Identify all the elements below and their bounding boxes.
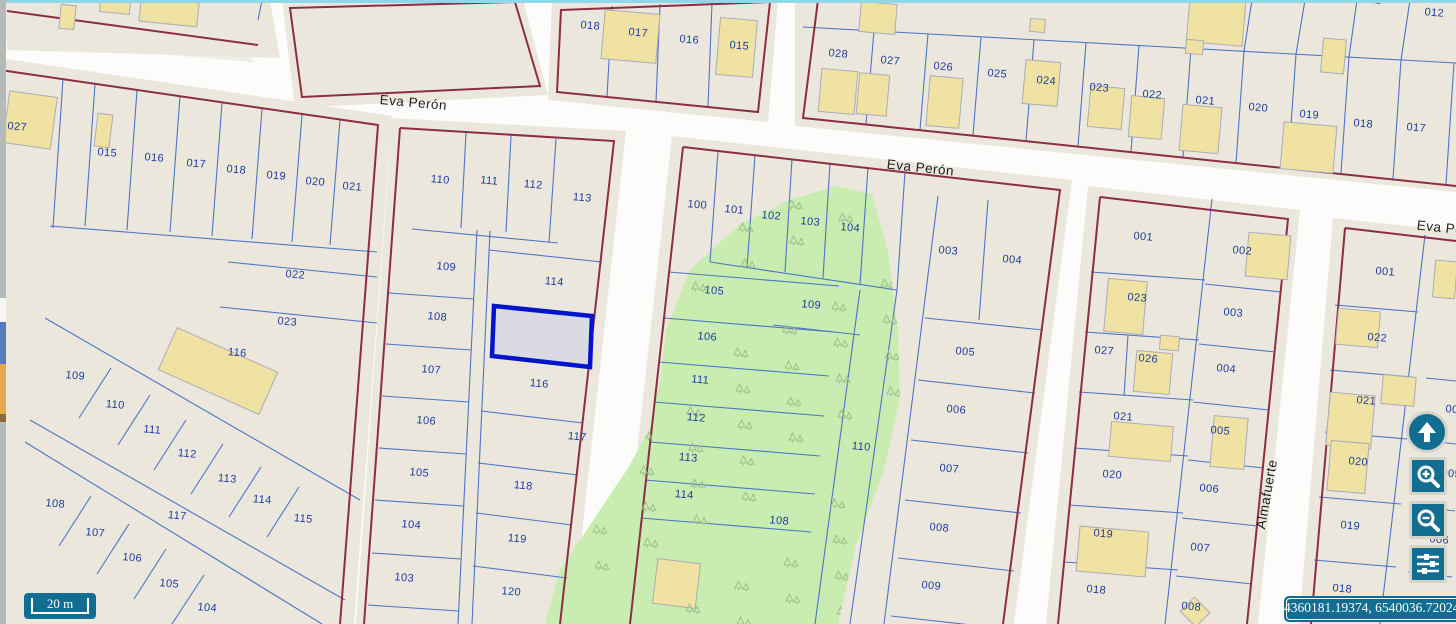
building-footprint — [1109, 421, 1174, 461]
building-footprint — [1432, 260, 1456, 299]
sliders-icon — [1415, 551, 1441, 577]
building-footprint — [652, 559, 700, 609]
parcel-label: 019 — [1093, 527, 1114, 541]
parcel-label: 105 — [409, 466, 430, 480]
parcel-label: 023 — [277, 315, 298, 329]
parcel-label: 119 — [507, 532, 527, 546]
parcel-label: 101 — [724, 203, 745, 217]
parcel-label: 018 — [1086, 583, 1107, 597]
parcel-label: 103 — [394, 571, 415, 585]
scale-bar-label: 20 m — [24, 596, 96, 612]
parcel-label: 020 — [1348, 455, 1369, 469]
parcel-label: 018 — [1353, 117, 1374, 131]
parcel-label: 005 — [955, 345, 976, 359]
parcel-label: 016 — [144, 151, 165, 165]
parcel-label: 001 — [1133, 230, 1154, 244]
parcel-label: 003 — [1223, 306, 1244, 320]
building-footprint — [1280, 122, 1337, 173]
parcel-label: 106 — [122, 551, 143, 565]
parcel-label: 017 — [628, 26, 649, 40]
parcel-label: 007 — [939, 462, 960, 476]
parcel-label: 019 — [266, 169, 287, 183]
parcel-label: 016 — [679, 33, 700, 47]
building-footprint — [1185, 39, 1203, 54]
parcel-label: 108 — [45, 497, 66, 511]
parcel-label: 008 — [929, 521, 950, 535]
zoom-out-button[interactable] — [1409, 501, 1447, 539]
parcel-label: 017 — [186, 157, 207, 171]
parcel-label: 118 — [513, 479, 533, 493]
parcel-label: 028 — [828, 47, 849, 61]
parcel-label: 110 — [851, 440, 871, 454]
parcel-label: 007 — [1190, 541, 1211, 555]
parcel-label: 107 — [421, 363, 442, 377]
parcel-label: 107 — [85, 526, 106, 540]
panel-fragment — [0, 364, 6, 414]
parcel-label: 018 — [580, 19, 601, 33]
parcel-label: 113 — [678, 451, 698, 465]
building-footprint — [1321, 38, 1347, 74]
parcel-label: 114 — [544, 275, 564, 289]
parcel-label: 023 — [1127, 291, 1148, 305]
parcel-label: 018 — [226, 163, 247, 177]
parcel-label: 021 — [1113, 410, 1134, 424]
parcel-label: 018 — [1332, 582, 1353, 596]
parcel-label: 113 — [572, 191, 592, 205]
parcel-label: 023 — [1089, 81, 1110, 95]
parcel-label: 025 — [987, 67, 1008, 81]
layer-settings-button[interactable] — [1409, 545, 1447, 583]
coordinates-display: 4360181.19374, 6540036.72024 — [1284, 596, 1456, 622]
parcel-label: 116 — [227, 346, 247, 360]
building-footprint — [818, 69, 858, 115]
zoom-in-button[interactable] — [1409, 457, 1447, 495]
parcel-label: 005 — [1210, 424, 1231, 438]
parcel-label: 019 — [1299, 108, 1320, 122]
parcel-label: 026 — [1138, 352, 1159, 366]
parcel-label: 002 — [1232, 244, 1253, 258]
parcel-label: 115 — [293, 512, 313, 526]
parcel-label: 102 — [761, 209, 782, 223]
parcel-label: 109 — [436, 260, 457, 274]
parcel-label: 104 — [840, 221, 861, 235]
coordinates-value: 4360181.19374, 6540036.72024 — [1284, 600, 1456, 616]
parcel-label: 117 — [567, 430, 587, 444]
building-footprint — [1104, 278, 1147, 334]
parcel-label: 020 — [305, 175, 326, 189]
panel-fragment — [0, 298, 6, 322]
parcel-label: 006 — [1199, 482, 1220, 496]
selected-parcel[interactable] — [492, 306, 592, 367]
parcel-label: 113 — [217, 472, 237, 486]
parcel-label: 027 — [7, 120, 28, 134]
parcel-label: 021 — [342, 180, 363, 194]
building-footprint — [1381, 375, 1416, 407]
parcel-label: 004 — [1002, 253, 1023, 267]
parcel-label: 022 — [285, 268, 306, 282]
parcel-label: 022 — [1142, 88, 1163, 102]
parcel-label: 117 — [167, 509, 187, 523]
building-footprint — [1029, 18, 1045, 32]
parcel-label: 106 — [416, 414, 437, 428]
panel-fragment — [0, 322, 6, 364]
pan-up-button[interactable] — [1406, 411, 1448, 453]
parcel-label: 019 — [1340, 519, 1361, 533]
parcel-label: 111 — [691, 373, 710, 387]
gis-map-viewer: Eva PerónEva PerónEva PerónAlmafuerte018… — [0, 0, 1456, 624]
map-canvas[interactable]: Eva PerónEva PerónEva PerónAlmafuerte018… — [0, 0, 1456, 624]
panel-fragment — [0, 414, 6, 422]
parcel-label: 110 — [105, 398, 125, 412]
parcel-label: 108 — [769, 514, 790, 528]
parcel-label: 008 — [1181, 600, 1202, 614]
parcel-label: 020 — [1102, 468, 1123, 482]
parcel-label: 009 — [921, 579, 942, 593]
building-footprint — [1159, 335, 1179, 351]
parcel-label: 110 — [430, 173, 450, 187]
parcel-label: 015 — [729, 39, 750, 53]
parcel-label: 017 — [1406, 121, 1427, 135]
parcel-label: 103 — [800, 215, 821, 229]
parcel-label: 111 — [480, 174, 499, 188]
parcel-label: 004 — [1216, 362, 1237, 376]
parcel-label: 022 — [1367, 331, 1388, 345]
building-footprint — [1186, 0, 1246, 46]
parcel-label: 027 — [880, 54, 901, 68]
parcel-label: 109 — [65, 369, 86, 383]
parcel-label: 105 — [159, 577, 180, 591]
parcel-label: 109 — [801, 298, 822, 312]
parcel-label: 021 — [1195, 94, 1216, 108]
parcel-label: 001 — [1375, 265, 1396, 279]
scale-bar: 20 m — [24, 593, 96, 619]
building-footprint — [1128, 96, 1164, 140]
parcel-label: 104 — [197, 601, 218, 615]
parcel-label: 116 — [529, 377, 549, 391]
building-footprint — [856, 73, 889, 116]
building-footprint — [1245, 232, 1291, 279]
building-footprint — [1179, 104, 1222, 153]
building-footprint — [926, 76, 963, 129]
parcel-label: 024 — [1036, 74, 1057, 88]
parcel-label: 012 — [1424, 6, 1445, 20]
collapsed-panel-edge[interactable] — [0, 0, 6, 624]
parcel-label: 114 — [252, 493, 272, 507]
parcel-label: 003 — [938, 244, 959, 258]
parcel-label: 111 — [143, 423, 162, 437]
parcel-label: 004 — [1445, 403, 1456, 417]
parcel-label: 106 — [697, 330, 718, 344]
parcel-label: 100 — [687, 198, 708, 212]
parcel-label: 104 — [401, 518, 422, 532]
building-footprint — [859, 1, 897, 34]
parcel-label: 120 — [501, 585, 522, 599]
parcel-label: 020 — [1248, 101, 1269, 115]
zoom-in-icon — [1415, 463, 1441, 489]
parcel-label: 021 — [1356, 394, 1377, 408]
up-arrow-icon — [1415, 420, 1439, 444]
parcel-label: 112 — [177, 447, 197, 461]
parcel-label: 108 — [427, 310, 448, 324]
parcel-label: 026 — [933, 60, 954, 74]
parcel-label: 105 — [704, 284, 725, 298]
map-top-border — [0, 0, 1456, 3]
parcel-label: 027 — [1094, 344, 1115, 358]
parcel-label: 006 — [946, 403, 967, 417]
parcel-label: 015 — [97, 146, 118, 160]
parcel-label: 112 — [686, 411, 706, 425]
building-footprint — [59, 4, 76, 29]
parcel-label: 114 — [674, 488, 694, 502]
zoom-out-icon — [1415, 507, 1441, 533]
parcel-label: 112 — [523, 178, 543, 192]
